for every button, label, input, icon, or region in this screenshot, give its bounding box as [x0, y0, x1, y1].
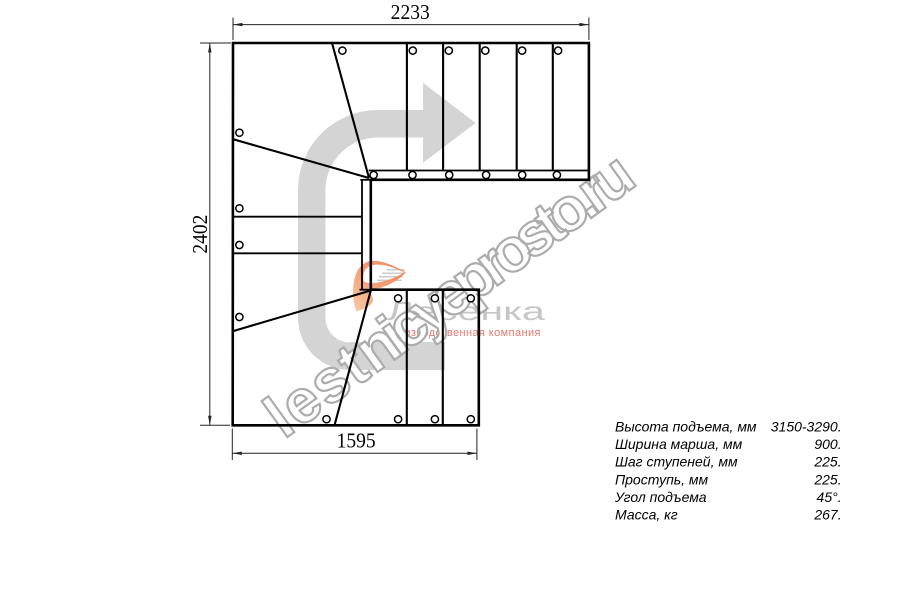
svg-text:1595: 1595 [337, 430, 376, 453]
svg-text:267.: 267. [813, 507, 841, 523]
svg-text:900.: 900. [814, 436, 841, 452]
svg-text:Проступь, мм: Проступь, мм [615, 471, 709, 487]
svg-text:Масса, кг: Масса, кг [615, 507, 678, 523]
svg-text:Угол подъема: Угол подъема [614, 489, 707, 505]
svg-text:2233: 2233 [391, 2, 430, 25]
svg-text:Ширина марша, мм: Ширина марша, мм [615, 436, 743, 452]
svg-text:3150-3290.: 3150-3290. [771, 418, 842, 434]
svg-text:Высота подъема, мм: Высота подъема, мм [615, 418, 757, 434]
svg-text:45°.: 45°. [817, 489, 842, 505]
svg-text:225.: 225. [813, 454, 841, 470]
svg-text:2402: 2402 [189, 215, 212, 254]
svg-text:225.: 225. [813, 471, 841, 487]
svg-text:Шаг ступеней, мм: Шаг ступеней, мм [615, 454, 738, 470]
